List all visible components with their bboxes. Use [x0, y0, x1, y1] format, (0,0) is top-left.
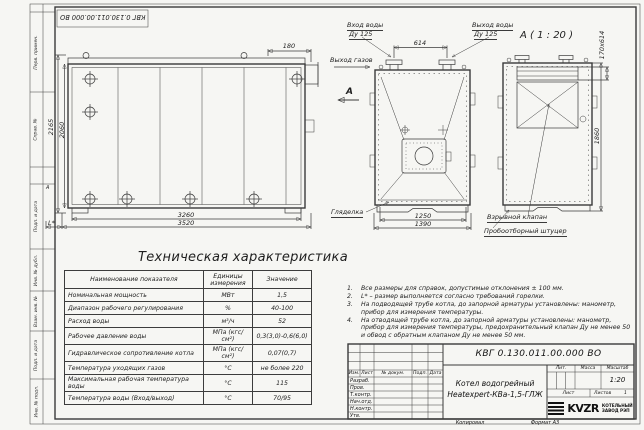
- format-label: Формат А3: [515, 420, 575, 426]
- label-water-outlet-dn: Ду 125: [474, 30, 497, 38]
- dim-614: 614: [400, 39, 440, 47]
- mass-label: Масса: [575, 366, 601, 371]
- spec-cell: МПа (кгс/см²): [203, 345, 252, 362]
- spec-cell: Рабочее давление воды: [65, 328, 204, 345]
- product-title: Котел водогрейный Heatexpert-КВа-1,5-ГЛЖ: [443, 378, 547, 401]
- zone-marker: А: [46, 185, 49, 191]
- frame-strip-vzam-inv: Взам. инв. №: [30, 291, 43, 331]
- spec-cell: не более 220: [253, 362, 312, 375]
- label-water-inlet: Вход воды: [347, 21, 383, 29]
- side-view: [46, 49, 370, 229]
- doc-number: КВГ 0.130.011.00.000 ВО: [443, 349, 634, 359]
- table-row: Номинальная мощностьМВт1,5: [65, 289, 312, 302]
- detail-view-title: А ( 1 : 20 ): [520, 30, 573, 41]
- spec-cell: Диапазон рабочего регулирования: [65, 302, 204, 315]
- table-row: Рабочее давление водыМПа (кгс/см²)0,3(3,…: [65, 328, 312, 345]
- spec-cell: °С: [203, 392, 252, 405]
- dim-1390: 1390: [403, 220, 443, 228]
- engineering-drawing-sheet: Перв. примен. Справ. № Подп. и дата Инв.…: [0, 0, 644, 430]
- list-item: 3.На подводящей трубе котла, до запорной…: [344, 301, 636, 317]
- sheets-label: Листов: [594, 391, 611, 396]
- spec-table: Наименование показателя Единицы измерени…: [64, 270, 312, 405]
- sign-row-tkontr: Т.контр.: [350, 392, 372, 398]
- frame-strip-sprav-no: Справ. №: [30, 92, 43, 167]
- label-water-inlet-dn: Ду 125: [349, 30, 372, 38]
- frame-strip-perv-primen: Перв. примен.: [30, 12, 43, 92]
- note-number: 2.: [344, 293, 361, 301]
- sign-row-prov: Пров.: [350, 385, 365, 391]
- dim-2060: 2060: [58, 115, 66, 145]
- section-arrow-label: А: [346, 87, 353, 97]
- list-item: 1.Все размеры для справок, допустимые от…: [344, 285, 636, 293]
- dim-3520: 3520: [166, 219, 206, 227]
- spec-cell: °С: [203, 362, 252, 375]
- detail-view: [493, 56, 609, 229]
- note-number: 1.: [344, 285, 361, 293]
- spec-header-name: Наименование показателя: [65, 271, 204, 289]
- note-number: 3.: [344, 301, 361, 317]
- lit-label: Лит.: [547, 366, 575, 371]
- spec-cell: Гидравлическое сопротивление котла: [65, 345, 204, 362]
- sheets-value: 1: [624, 391, 627, 396]
- frame-strip-inv-podl: Инв. № подл.: [30, 379, 43, 424]
- sign-row-nkontr: Н.контр.: [350, 406, 372, 412]
- boiler-coil-logo-icon: [548, 402, 564, 415]
- spec-cell: 40-100: [253, 302, 312, 315]
- product-title-line2: Heatexpert-КВа-1,5-ГЛЖ: [443, 389, 547, 400]
- spec-cell: %: [203, 302, 252, 315]
- spec-cell: 52: [253, 315, 312, 328]
- table-row: Расход водым³/ч52: [65, 315, 312, 328]
- company-logo-block: KVZR КОТЕЛЬНЫЙ ЗАВОД РЭП: [548, 398, 633, 418]
- frame-strip-inv-dubl: Инв. № дубл.: [30, 249, 43, 291]
- list-item: 4.На отводящей трубе котла, до запорной …: [344, 317, 636, 341]
- note-text: L* – размер выполняется согласно требова…: [361, 293, 636, 301]
- spec-cell: Номинальная мощность: [65, 289, 204, 302]
- dim-duct-170x614: 170х614: [598, 27, 606, 63]
- spec-cell: °С: [203, 375, 252, 392]
- label-water-outlet: Выход воды: [472, 21, 513, 29]
- copied-label: Копировал: [440, 420, 500, 426]
- spec-header-units: Единицы измерения: [203, 271, 252, 289]
- notes-list: 1.Все размеры для справок, допустимые от…: [344, 285, 636, 340]
- spec-cell: Расход воды: [65, 315, 204, 328]
- note-text: На подводящей трубе котла, до запорной а…: [361, 301, 636, 317]
- table-row: Гидравлическое сопротивление котлаМПа (к…: [65, 345, 312, 362]
- spec-header-value: Значение: [253, 271, 312, 289]
- spec-cell: МВт: [203, 289, 252, 302]
- spec-table-title: Техническая характеристика: [138, 250, 348, 265]
- note-text: На отводящей трубе котла, до запорной ар…: [361, 317, 636, 341]
- dim-180: 180: [274, 42, 304, 50]
- spec-header-row: Наименование показателя Единицы измерени…: [65, 271, 312, 289]
- table-row: Диапазон рабочего регулирования%40-100: [65, 302, 312, 315]
- spec-cell: м³/ч: [203, 315, 252, 328]
- scale-value: 1:20: [601, 376, 634, 384]
- rev-header-podp: Подп.: [412, 371, 428, 376]
- dim-3260: 3260: [166, 211, 206, 219]
- spec-cell: 70/95: [253, 392, 312, 405]
- table-row: Температура уходящих газов°Сне более 220: [65, 362, 312, 375]
- spec-cell: МПа (кгс/см²): [203, 328, 252, 345]
- rev-header-list: Лист: [360, 371, 374, 376]
- product-title-line1: Котел водогрейный: [443, 378, 547, 389]
- dim-1250: 1250: [403, 212, 443, 220]
- label-explosion-valve: Взрывной клапан: [487, 213, 547, 221]
- spec-cell: 0,3(3,0)-0,6(6,0): [253, 328, 312, 345]
- rev-header-docnum: № докум.: [374, 371, 412, 376]
- sign-row-utv: Утв.: [350, 413, 361, 419]
- rev-header-izm: Изм.: [348, 371, 360, 376]
- front-view: [362, 37, 489, 230]
- scale-label: Масштаб: [601, 366, 634, 371]
- spec-cell: Максимальная рабочая температура воды: [65, 375, 204, 392]
- sign-row-razrab: Разраб.: [350, 378, 370, 384]
- spec-cell: 0,07(0,7): [253, 345, 312, 362]
- note-number: 4.: [344, 317, 361, 341]
- label-gas-outlet: Выход газов: [330, 56, 373, 64]
- dim-l-star: L*: [48, 219, 55, 227]
- label-sight-glass: Гляделка: [331, 208, 363, 216]
- table-row: Максимальная рабочая температура воды°С1…: [65, 375, 312, 392]
- frame-strip-podp-data-1: Подп. и дата: [30, 184, 43, 249]
- rev-header-data: Дата: [428, 371, 443, 376]
- label-sampling-fitting: Пробоотборный штуцер: [484, 227, 567, 235]
- dim-2165: 2165: [47, 112, 55, 142]
- spec-cell: 115: [253, 375, 312, 392]
- list-item: 2.L* – размер выполняется согласно требо…: [344, 293, 636, 301]
- spec-cell: 1,5: [253, 289, 312, 302]
- spec-cell: Температура воды (Вход/выход): [65, 392, 204, 405]
- company-name: КОТЕЛЬНЫЙ ЗАВОД РЭП: [602, 403, 633, 413]
- spec-cell: Температура уходящих газов: [65, 362, 204, 375]
- top-stamp-doc-number: КВГ 0.130.011.00.000 ВО: [57, 13, 148, 21]
- sheet-label: Лист: [547, 391, 590, 396]
- table-row: Температура воды (Вход/выход)°С70/95: [65, 392, 312, 405]
- frame-strip-podp-data-2: Подп. и дата: [30, 331, 43, 379]
- company-logo-text: KVZR: [567, 402, 598, 415]
- company-name-line2: ЗАВОД РЭП: [602, 408, 633, 413]
- note-text: Все размеры для справок, допустимые откл…: [361, 285, 636, 293]
- dim-1860: 1860: [593, 119, 601, 153]
- sign-row-nachotd: Нач.отд.: [350, 399, 372, 405]
